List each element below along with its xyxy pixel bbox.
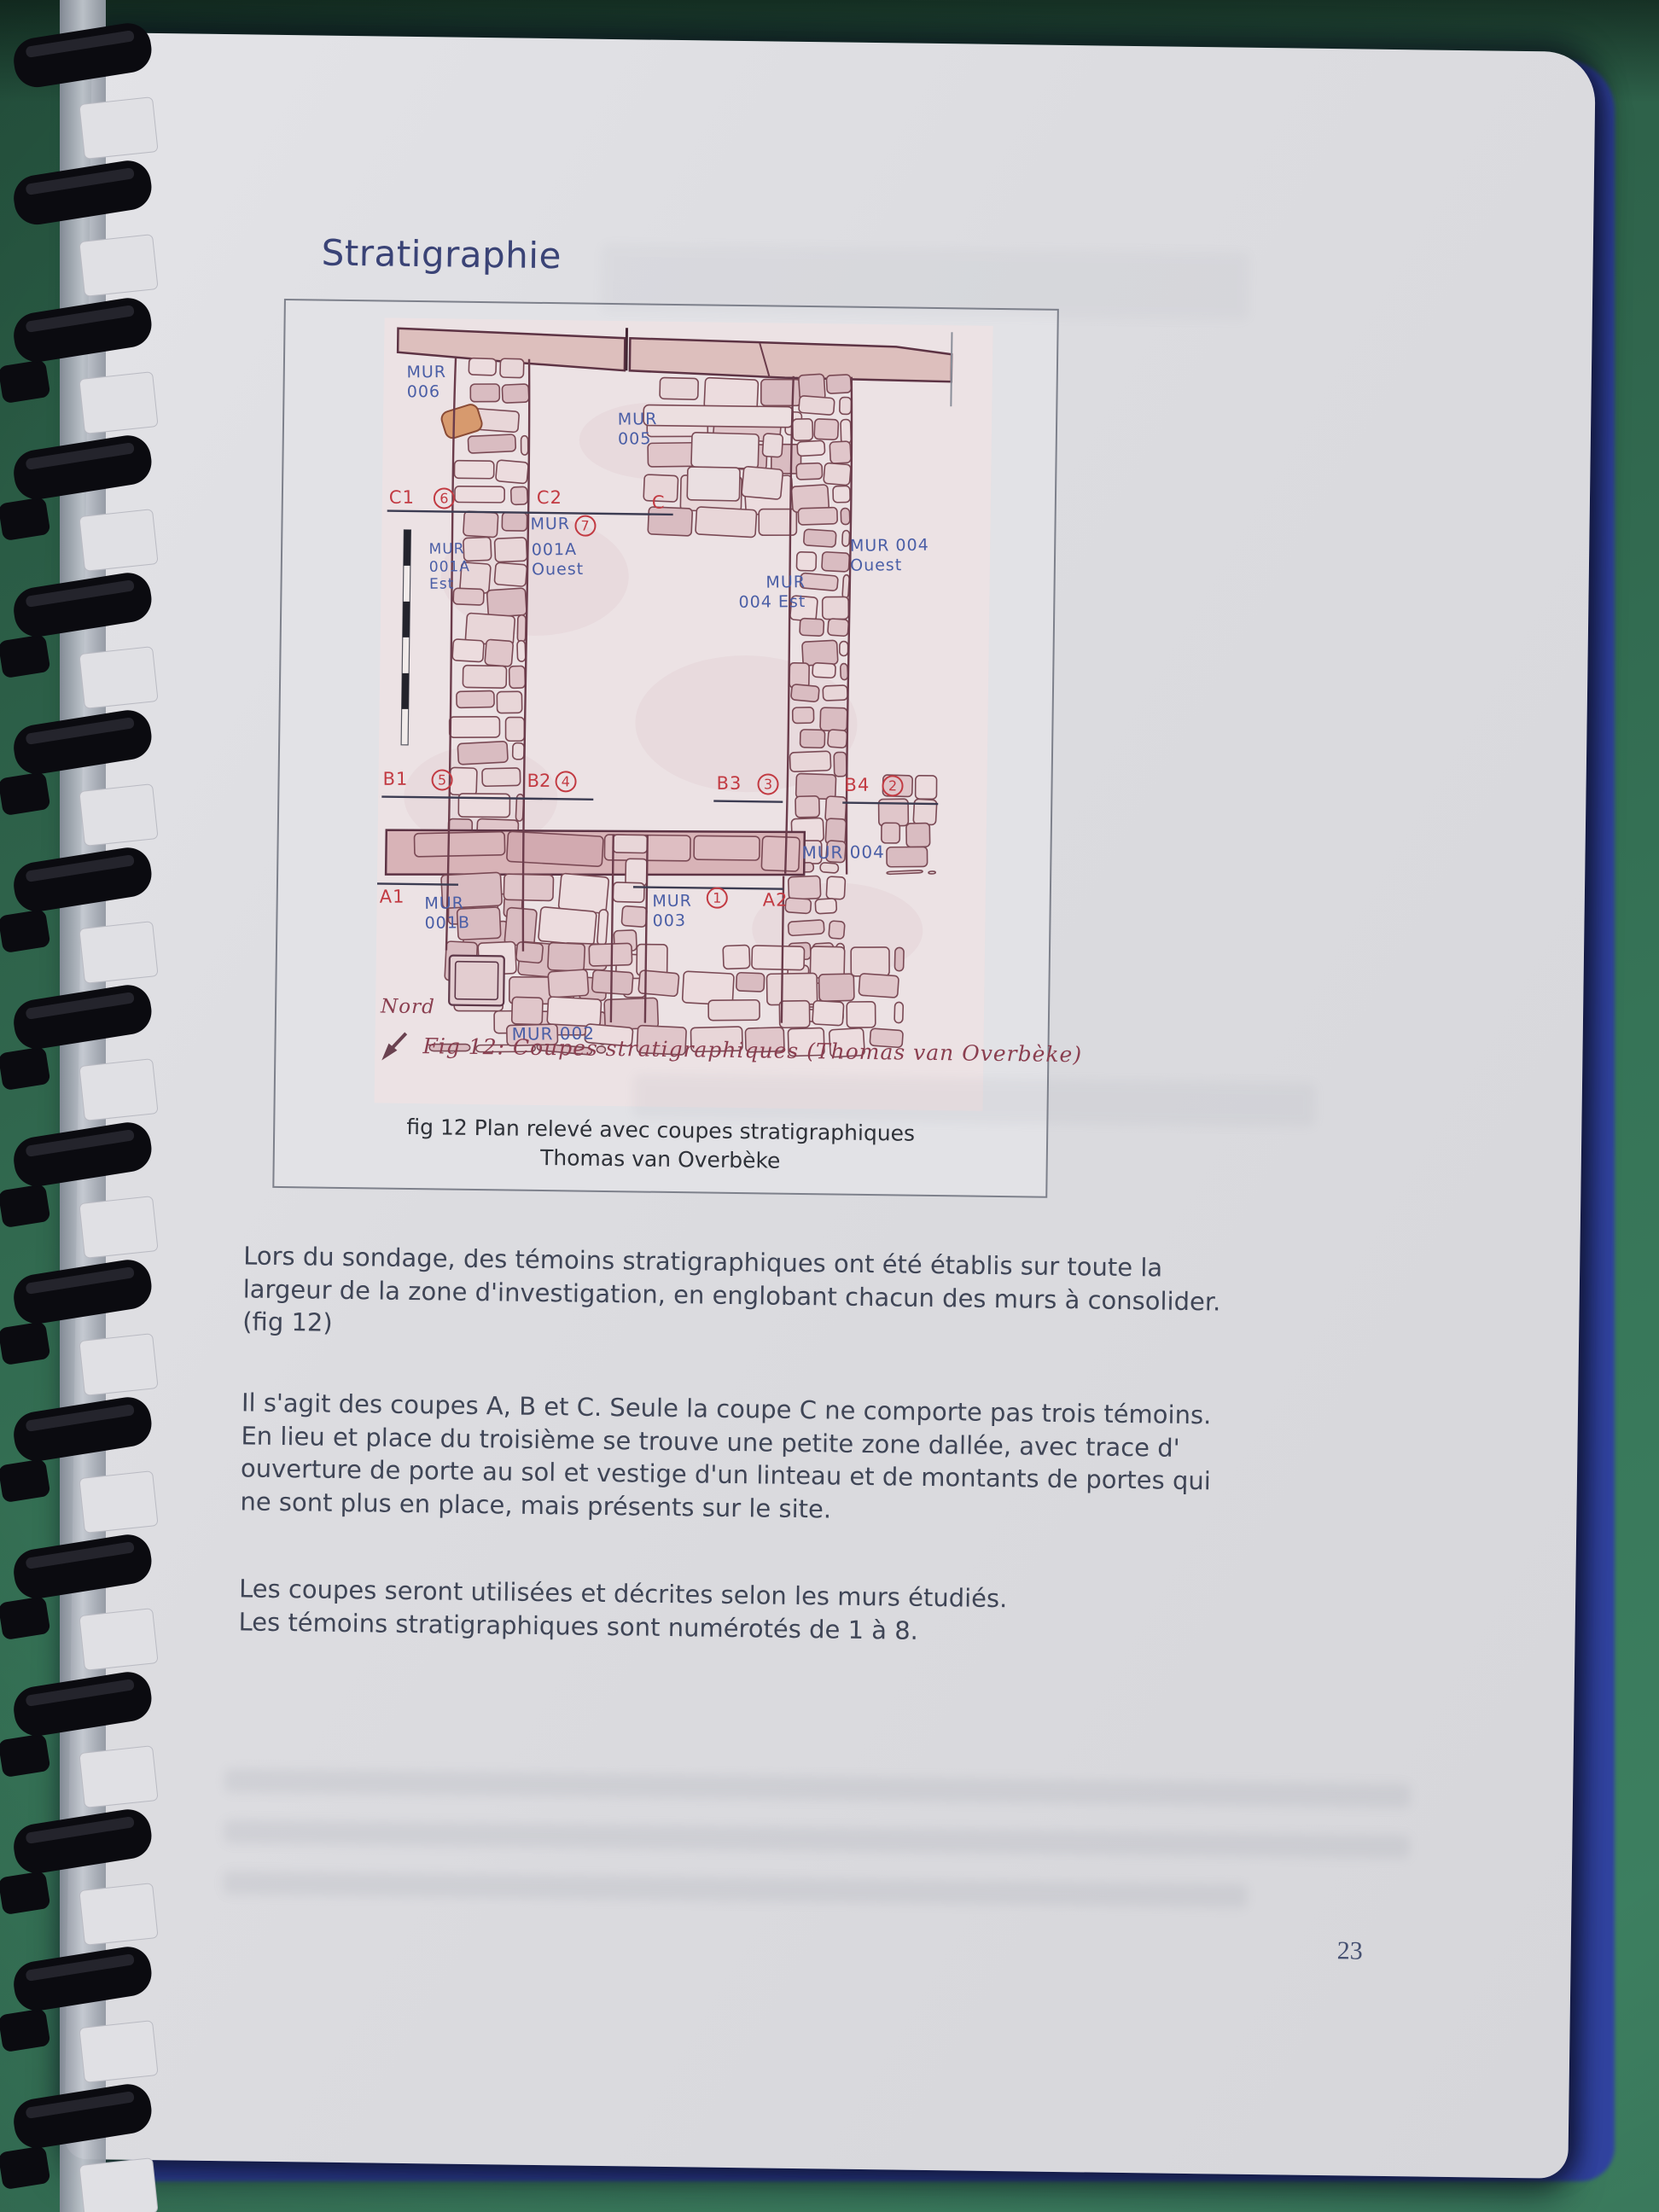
- report-page: Stratigraphie MUR 006 MUR 005 MUR 7 001A…: [64, 32, 1595, 2179]
- figure-caption-line2: Thomas van Overbèke: [275, 1142, 1046, 1177]
- label-mur003: MUR 003: [652, 892, 692, 932]
- north-label: Nord: [381, 995, 435, 1020]
- label-c2: C2: [537, 487, 562, 509]
- stratigraphic-plan-drawing: [375, 318, 993, 1111]
- witness-4-badge: 4: [555, 771, 576, 792]
- label-mur004-ouest: MUR 004 Ouest: [850, 536, 929, 576]
- label-b2: B2: [527, 771, 551, 791]
- label-mur001a-est: MUR 001A Est: [428, 540, 470, 594]
- label-a2: A2: [763, 890, 789, 912]
- witness-5-badge: 5: [431, 769, 452, 790]
- label-b3: B3: [716, 773, 742, 795]
- showthrough-text: [223, 1871, 1247, 1908]
- figure-frame: MUR 006 MUR 005 MUR 7 001A Ouest MUR 001…: [272, 299, 1059, 1198]
- paragraph-1: Lors du sondage, des témoins stratigraph…: [242, 1239, 1523, 1354]
- label-mur005: MUR 005: [618, 410, 658, 450]
- label-c1: C1: [389, 487, 415, 509]
- label-001a-ouest: 001A Ouest: [532, 540, 585, 580]
- witness-2-badge: 2: [882, 775, 903, 796]
- label-mur001b: MUR 001B: [424, 894, 470, 934]
- comb-binding: [0, 0, 179, 2212]
- label-a1: A1: [380, 887, 405, 909]
- label-mur004-est: MUR 004 Est: [738, 573, 806, 613]
- label-c: C: [652, 492, 666, 515]
- label-mur-word: MUR: [530, 515, 570, 534]
- label-b2-group: B2 4: [527, 771, 576, 793]
- paragraph-3: Les coupes seront utilisées et décrites …: [238, 1572, 1519, 1655]
- photo-of-bound-report: { "doc": { "title": "Stratigraphie", "pa…: [0, 0, 1659, 2212]
- page-title: Stratigraphie: [321, 232, 562, 277]
- label-mur-7: MUR 7: [530, 515, 596, 537]
- label-mur004-plan: MUR 004: [801, 841, 885, 863]
- label-b4: B4: [844, 775, 870, 797]
- page-number: 23: [1336, 1936, 1362, 1965]
- figure-scan: MUR 006 MUR 005 MUR 7 001A Ouest MUR 001…: [375, 318, 993, 1111]
- label-b1: B1: [383, 769, 409, 791]
- showthrough-text: [224, 1819, 1410, 1859]
- witness-7-badge: 7: [574, 515, 596, 536]
- showthrough-text: [224, 1768, 1411, 1807]
- figure-caption-line1: fig 12 Plan relevé avec coupes stratigra…: [275, 1113, 1046, 1148]
- witness-1-badge: 1: [707, 888, 728, 909]
- paragraph-2: Il s'agit des coupes A, B et C. Seule la…: [240, 1386, 1522, 1534]
- label-mur006: MUR 006: [406, 363, 446, 403]
